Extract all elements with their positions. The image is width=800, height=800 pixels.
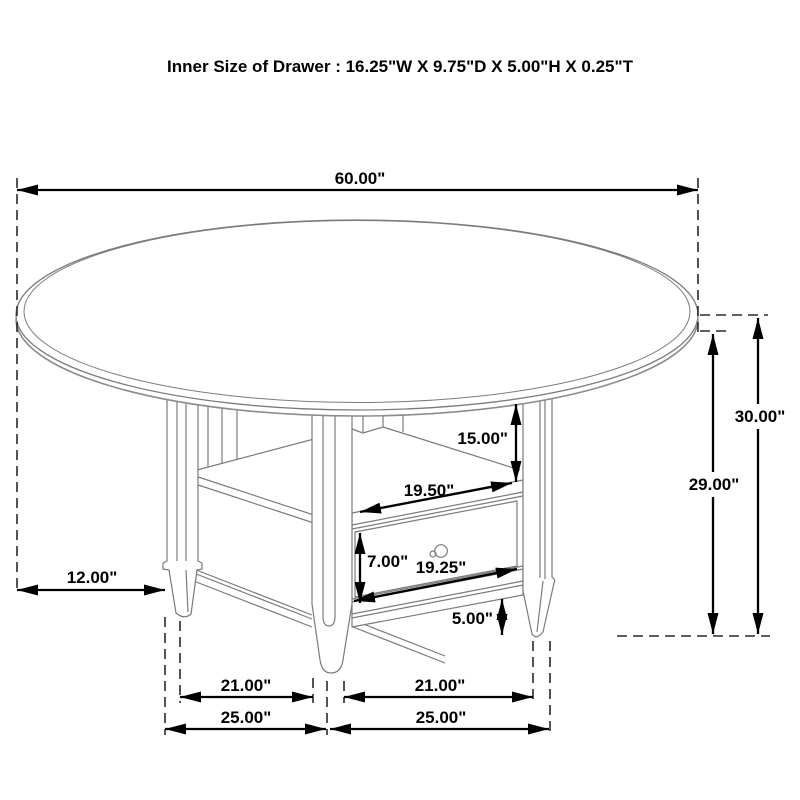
dim-table-diameter: 60.00": [17, 169, 698, 190]
dim-leg-floor-clearance-label: 5.00": [452, 609, 493, 628]
dim-shelf-opening-height-label: 15.00": [457, 429, 508, 448]
dim-table-diameter-label: 60.00": [335, 169, 386, 188]
round-table-top: [16, 220, 698, 416]
far-apron-molding: [353, 620, 445, 663]
dim-inner-leg-span-left: 21.00": [180, 676, 313, 697]
dim-drawer-height-label: 7.00": [367, 552, 408, 571]
dim-apron-height: 29.00": [683, 334, 745, 634]
table-dimension-diagram: Inner Size of Drawer : 16.25"W X 9.75"D …: [0, 0, 800, 800]
dim-outer-leg-span-right: 25.00": [330, 708, 549, 729]
dim-inner-leg-span-right-label: 21.00": [415, 676, 466, 695]
dim-outer-leg-span-left-label: 25.00": [221, 708, 272, 727]
dim-shelf-opening-width-label: 19.50": [404, 481, 455, 500]
dim-outer-leg-span-left: 25.00": [165, 708, 326, 729]
dim-drawer-width-label: 19.25": [416, 558, 467, 577]
left-apron-molding: [186, 566, 312, 627]
dim-shelf-opening-height: 15.00": [457, 404, 516, 482]
front-center-leg: [312, 400, 352, 673]
front-right-leg: [523, 392, 555, 637]
dim-overall-height-label: 30.00": [735, 407, 786, 426]
dim-inner-leg-span-left-label: 21.00": [221, 676, 272, 695]
dim-top-overhang: 12.00": [17, 568, 165, 590]
diagram-svg: Inner Size of Drawer : 16.25"W X 9.75"D …: [0, 0, 800, 800]
dim-top-overhang-label: 12.00": [67, 568, 118, 587]
dim-outer-leg-span-right-label: 25.00": [416, 708, 467, 727]
drawing-title: Inner Size of Drawer : 16.25"W X 9.75"D …: [167, 57, 634, 76]
dim-inner-leg-span-right: 21.00": [344, 676, 533, 697]
dim-apron-height-label: 29.00": [689, 475, 740, 494]
